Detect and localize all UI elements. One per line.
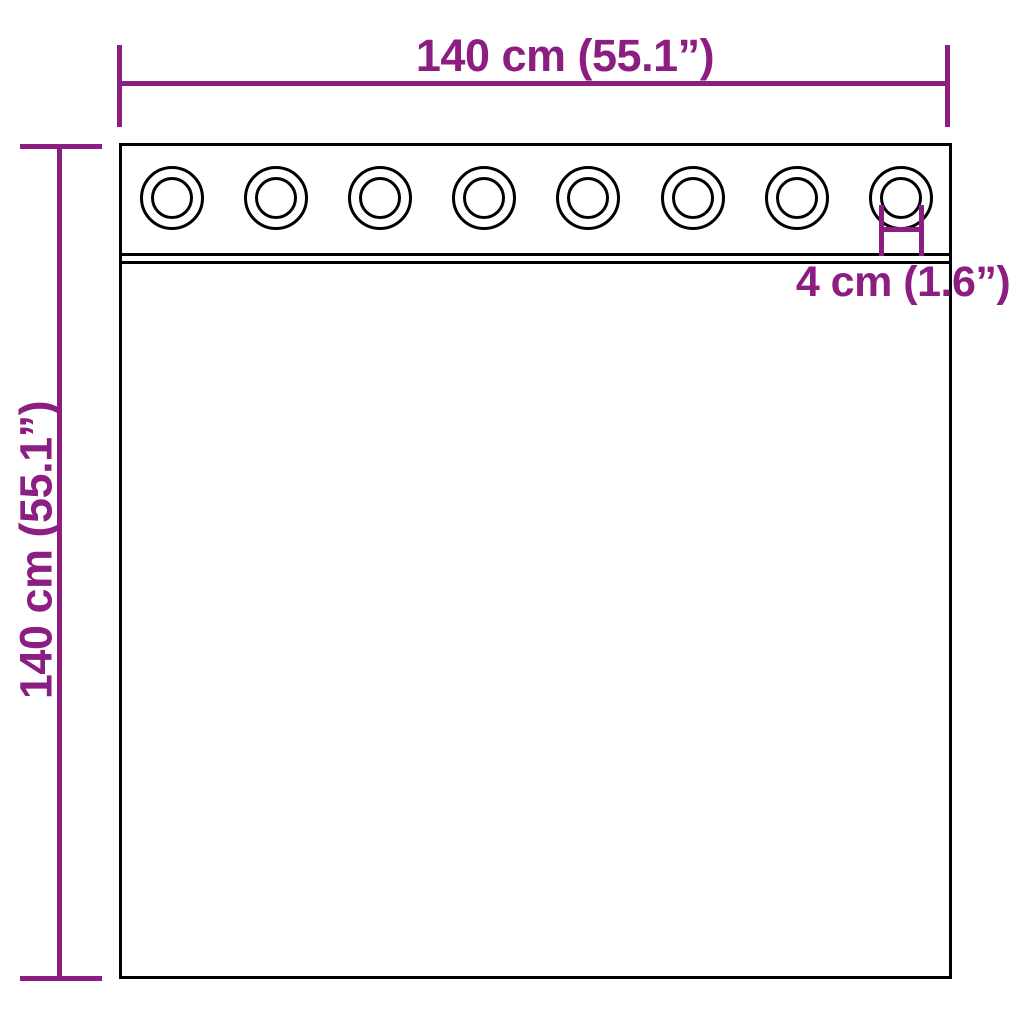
grommet-row bbox=[0, 0, 1024, 1024]
top-dimension-tick-right bbox=[945, 45, 950, 127]
grommet-hole bbox=[255, 177, 297, 219]
width-dimension-label: 140 cm (55.1”) bbox=[230, 33, 900, 78]
diagram-canvas: 140 cm (55.1”) 140 cm (55.1”) 4 cm (1.6”… bbox=[0, 0, 1024, 1024]
grommet-hole bbox=[776, 177, 818, 219]
top-dimension-line bbox=[117, 81, 950, 86]
top-dimension-tick-left bbox=[117, 45, 122, 127]
grommet-hole bbox=[151, 177, 193, 219]
left-dimension-tick-top bbox=[20, 144, 102, 149]
grommet-hole bbox=[359, 177, 401, 219]
grommet-hole bbox=[567, 177, 609, 219]
height-dimension-label: 140 cm (55.1”) bbox=[14, 401, 59, 699]
grommet bbox=[140, 166, 204, 230]
grommet bbox=[348, 166, 412, 230]
grommet-diameter-label: 4 cm (1.6”) bbox=[753, 260, 1024, 305]
grommet-hole bbox=[880, 177, 922, 219]
grommet bbox=[244, 166, 308, 230]
grommet-hole bbox=[463, 177, 505, 219]
grommet-bracket-bar bbox=[879, 227, 924, 232]
left-dimension-tick-bottom bbox=[20, 976, 102, 981]
grommet bbox=[556, 166, 620, 230]
grommet bbox=[452, 166, 516, 230]
grommet bbox=[661, 166, 725, 230]
grommet bbox=[765, 166, 829, 230]
grommet-hole bbox=[672, 177, 714, 219]
